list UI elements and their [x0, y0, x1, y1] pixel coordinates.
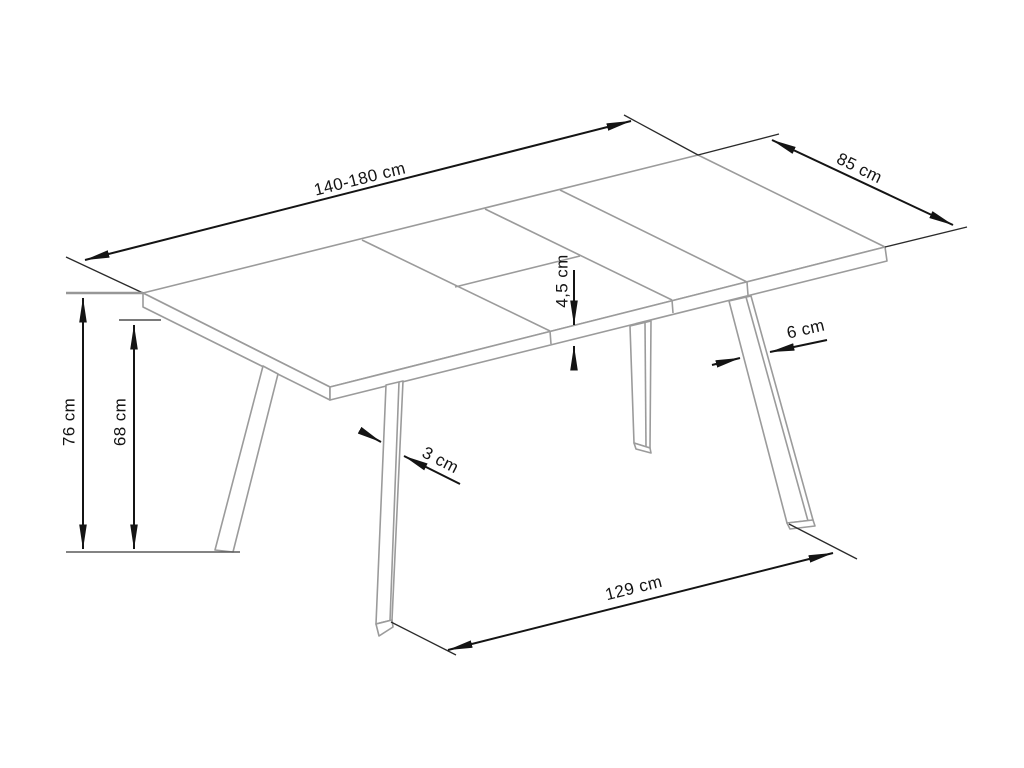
- extension-line: [789, 524, 857, 559]
- extension-line: [698, 134, 779, 155]
- dimension-leg-width: 6 cm: [712, 315, 827, 365]
- dim-label-leg-thickness: 3 cm: [419, 443, 462, 477]
- dimension-arrow-leg-width-left: [712, 358, 740, 365]
- extension-line: [66, 257, 143, 293]
- table-leg-front-left: [376, 381, 403, 624]
- table-leg-rear-left: [215, 366, 278, 552]
- dim-label-leg-width: 6 cm: [785, 315, 827, 342]
- extension-line: [885, 227, 967, 247]
- dim-label-length: 140-180 cm: [312, 158, 408, 199]
- table-drawing: [143, 155, 887, 636]
- dimension-foot-span: 129 cm: [391, 524, 857, 655]
- dimension-clearance: 68 cm: [110, 320, 161, 549]
- dim-label-height: 76 cm: [59, 398, 78, 446]
- dim-label-clearance: 68 cm: [110, 398, 129, 446]
- extension-line: [391, 622, 456, 655]
- dimension-leg-thickness: 3 cm: [361, 431, 462, 484]
- table-leg-rear-right: [630, 321, 651, 448]
- dimension-arrow-leg-thickness-left: [361, 431, 381, 442]
- seam-tick: [672, 300, 673, 313]
- table-leg-edge: [645, 322, 646, 448]
- seam-tick: [747, 282, 748, 295]
- dim-label-top-thickness: 4,5 cm: [552, 254, 571, 307]
- table-dimension-drawing: 140-180 cm 85 cm 76 cm 68 cm 4,5 cm: [0, 0, 1024, 768]
- dimension-arrow-foot-span: [448, 553, 833, 650]
- dim-label-foot-span: 129 cm: [603, 572, 664, 605]
- dimension-diagram: 140-180 cm 85 cm 76 cm 68 cm 4,5 cm: [0, 0, 1024, 768]
- extension-line: [624, 115, 698, 155]
- dimension-arrow-leg-width-right: [770, 340, 827, 352]
- seam-tick: [550, 331, 551, 344]
